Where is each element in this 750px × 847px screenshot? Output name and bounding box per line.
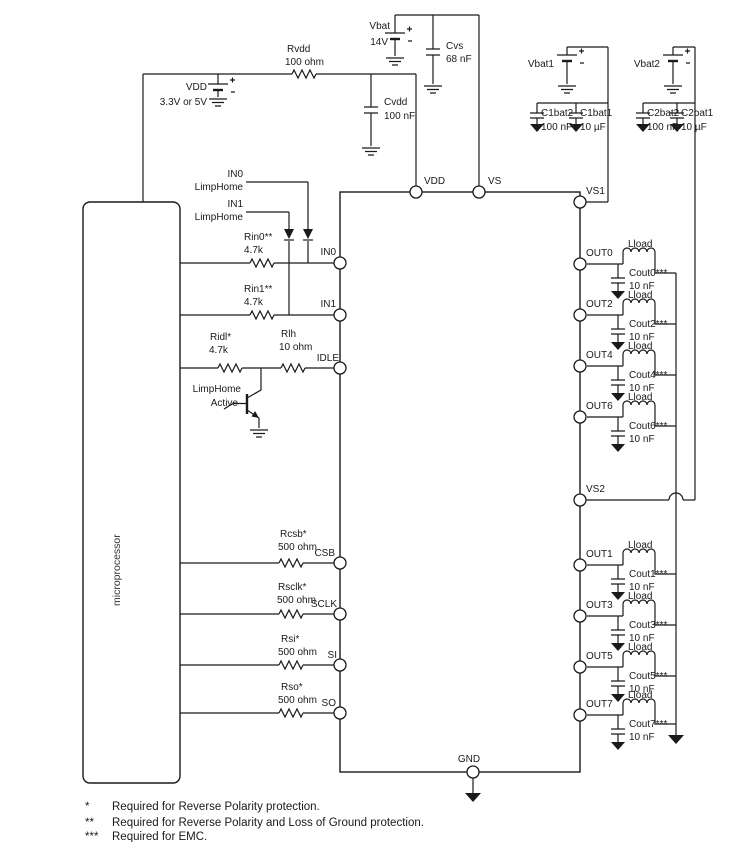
rsi-value: 500 ohm [278,647,317,658]
cout4-name: Cout4*** [629,370,667,381]
vbat-value: 14V [370,37,388,48]
footnote-text: Required for Reverse Polarity and Loss o… [112,817,424,829]
c1bat2-value: 100 nF [541,122,572,133]
footnote-text: Required for Reverse Polarity protection… [112,801,320,813]
cout7-name: Cout7*** [629,719,667,730]
vbat-wire [395,15,479,186]
load-label: Lload [628,690,652,701]
arrow-ground-icon [611,592,625,600]
pin-label-gnd: GND [458,754,480,765]
in1-limphome-line1: IN1 [227,199,243,210]
rcsb-name: Rcsb* [280,529,307,540]
arrow-ground-icon [611,342,625,350]
pin-label-idle: IDLE [317,353,340,364]
resistor-rsi-icon [279,661,303,669]
rin1-value: 4.7k [244,297,264,308]
vdd-supply-name: VDD [186,82,207,93]
ic-outline [340,192,580,772]
capacitor-cout0-icon [611,278,625,283]
load-label: Lload [628,392,652,403]
pin-vs1 [574,196,586,208]
limphome-transistor: LimpHome Active [193,368,268,437]
resistor-rcsb-icon [279,559,303,567]
load-label: Lload [628,290,652,301]
rso-name: Rso* [281,682,303,693]
output-channel-out7: Lload Cout7*** 10 nF OUT7 [574,690,676,750]
vbat2-name: Vbat2 [634,59,661,70]
earth-ground-icon [386,58,404,65]
battery-vdd-polarity-marks [230,78,235,93]
microprocessor-label: microprocessor [111,534,123,606]
pin-in0 [334,257,346,269]
microprocessor-box: microprocessor [83,202,180,783]
in1-limphome-line2: LimpHome [195,212,244,223]
resistor-rvdd-icon [292,70,316,78]
resistor-ridl-icon [218,364,242,372]
capacitor-cout7-icon [611,729,625,734]
pin-vdd [410,186,422,198]
si-net: Rsi* 500 ohm [180,634,334,669]
rvdd-value: 100 ohm [285,57,324,68]
diode-icon [303,229,313,239]
pin-label-out5: OUT5 [586,651,613,662]
capacitor-cout2-icon [611,329,625,334]
output-channel-out0: Lload Cout0*** 10 nF OUT0 [574,239,676,299]
earth-ground-icon [424,86,442,93]
rlh-name: Rlh [281,329,296,340]
rsi-name: Rsi* [281,634,299,645]
load-label: Lload [628,540,652,551]
vdd-wire [143,74,416,202]
pin-csb [334,557,346,569]
earth-ground-icon [209,99,227,106]
vbat-name: Vbat [369,21,390,32]
resistor-rsclk-icon [279,610,303,618]
cout6-value: 10 nF [629,434,655,445]
battery-vbat2-icon [663,49,690,94]
pin-out1 [574,559,586,571]
battery-vdd-icon [208,74,235,106]
resistor-rso-icon [279,709,303,717]
output-channel-out2: Lload Cout2*** 10 nF OUT2 [574,290,676,350]
rin0-value: 4.7k [244,245,264,256]
vbat1-name: Vbat1 [528,59,555,70]
load-label: Lload [628,341,652,352]
cout1-name: Cout1*** [629,569,667,580]
pin-vs2 [574,494,586,506]
c1bat1-value: 10 µF [580,122,606,133]
pin-label-so: SO [322,698,337,709]
earth-ground-icon [558,86,576,93]
load-label: Lload [628,239,652,250]
cvdd-value: 100 nF [384,111,415,122]
cout3-name: Cout3*** [629,620,667,631]
in0-limphome-line1: IN0 [227,169,243,180]
rin0-name: Rin0** [244,232,272,243]
pin-out6 [574,411,586,423]
c2bat1-name: C2bat1 [681,108,714,119]
pin-out4 [574,360,586,372]
output-channel-out5: Lload Cout5*** 10 nF OUT5 [574,642,676,702]
pin-label-csb: CSB [314,548,335,559]
rsclk-value: 500 ohm [277,595,316,606]
cvs-plates [426,49,440,55]
pin-label-out7: OUT7 [586,699,613,710]
arrow-ground-icon [668,735,684,744]
diode-icon [284,229,294,239]
resistor-rlh-icon [281,364,305,372]
cvs-name: Cvs [446,41,463,52]
battery-vbat2-stem [673,49,690,85]
ic-box: VDD VS VS1 VS2 GND IN0 IN1 IDLE CSB SCLK… [311,176,605,778]
arrow-ground-icon [611,742,625,750]
arrow-ground-icon [611,444,625,452]
pin-label-out2: OUT2 [586,299,613,310]
pin-label-vs: VS [488,176,502,187]
capacitor-cout5-icon [611,681,625,686]
rso-value: 500 ohm [278,695,317,706]
output-channel-out4: Lload Cout4*** 10 nF OUT4 [574,341,676,401]
battery-vbat1-icon [557,49,584,94]
vbat1-section: Vbat1 C1bat2 100 nF C1bat1 10 µF [528,47,613,202]
cout6-name: Cout6*** [629,421,667,432]
capacitor-cout6-icon [611,431,625,436]
pin-label-in1: IN1 [320,299,336,310]
load-label: Lload [628,591,652,602]
idle-net: Ridl* 4.7k Rlh 10 ohm [180,329,334,372]
cout7-value: 10 nF [629,732,655,743]
arrow-ground-icon [611,393,625,401]
footnote-marker: ** [85,817,94,829]
pin-label-si: SI [328,650,337,661]
capacitor-cvs-icon [424,15,442,93]
pin-out0 [574,258,586,270]
resistor-rin1-icon [250,311,274,319]
pin-label-vdd: VDD [424,176,445,187]
cvdd-plates [364,107,378,113]
pin-out7 [574,709,586,721]
cout0-name: Cout0*** [629,268,667,279]
pin-label-out1: OUT1 [586,549,613,560]
footnote-marker: * [85,801,90,813]
capacitor-cout1-icon [611,579,625,584]
pin-label-in0: IN0 [320,247,336,258]
transistor-emitter-arrow [252,411,260,418]
pin-label-out3: OUT3 [586,600,613,611]
gnd-section [465,779,481,803]
limphome-active-line2: Active [211,398,239,409]
earth-ground-icon [362,148,380,155]
load-label: Lload [628,642,652,653]
pin-gnd [467,766,479,778]
footnote-marker: *** [85,831,99,842]
schematic-page: microprocessor VDD VS VS1 VS2 GND IN0 IN… [0,0,750,842]
in0-limphome-line2: LimpHome [195,182,244,193]
limphome-active-line1: LimpHome [193,384,242,395]
sclk-net: Rsclk* 500 ohm [180,582,334,618]
pin-out5 [574,661,586,673]
arrow-ground-icon [611,643,625,651]
rsclk-name: Rsclk* [278,582,306,593]
c2bat1-value: 10 µF [681,122,707,133]
cvs-value: 68 nF [446,54,472,65]
pin-label-vs2: VS2 [586,484,605,495]
earth-ground-icon [250,430,268,437]
capacitor-cout4-icon [611,380,625,385]
pin-label-out4: OUT4 [586,350,613,361]
arrow-ground-icon [611,291,625,299]
rlh-value: 10 ohm [279,342,312,353]
rcsb-value: 500 ohm [278,542,317,553]
vdd-supply-value: 3.3V or 5V [160,97,208,108]
footnote-text: Required for EMC. [112,831,207,842]
arrow-ground-icon [611,694,625,702]
pin-vs [473,186,485,198]
microprocessor-outline [83,202,180,783]
in1-net: Rin1** 4.7k [180,284,334,319]
footnotes: * Required for Reverse Polarity protecti… [85,801,424,842]
in0-net: Rin0** 4.7k [180,232,334,267]
pin-label-out0: OUT0 [586,248,613,259]
output-channel-out3: Lload Cout3*** 10 nF OUT3 [574,591,676,651]
earth-ground-icon [664,86,682,93]
capacitor-cvdd-icon [362,74,380,155]
circuit-schematic: microprocessor VDD VS VS1 VS2 GND IN0 IN… [0,0,750,842]
pin-label-vs1: VS1 [586,186,605,197]
cout2-name: Cout2*** [629,319,667,330]
c1bat2-name: C1bat2 [541,108,574,119]
pin-out3 [574,610,586,622]
pin-label-out6: OUT6 [586,401,613,412]
vdd-supply-section: Rvdd 100 ohm VDD 3.3V or 5V Cvdd 100 nF [143,44,416,202]
battery-vbat1-stem [567,49,584,85]
rin1-name: Rin1** [244,284,272,295]
output-channel-out6: Lload Cout6*** 10 nF OUT6 [574,392,676,452]
output-channel-out1: Lload Cout1*** 10 nF OUT1 [574,540,676,600]
arrow-ground-icon [465,793,481,802]
battery-vbat-polarity-marks [407,27,412,42]
ridl-name: Ridl* [210,332,231,343]
cout5-name: Cout5*** [629,671,667,682]
capacitor-cout3-icon [611,630,625,635]
c1bat1-name: C1bat1 [580,108,613,119]
pin-in1 [334,309,346,321]
resistor-rin0-icon [250,259,274,267]
rvdd-name: Rvdd [287,44,310,55]
csb-net: Rcsb* 500 ohm [180,529,334,567]
ridl-value: 4.7k [209,345,229,356]
pin-out2 [574,309,586,321]
cvdd-name: Cvdd [384,97,407,108]
so-net: Rso* 500 ohm [180,682,334,717]
